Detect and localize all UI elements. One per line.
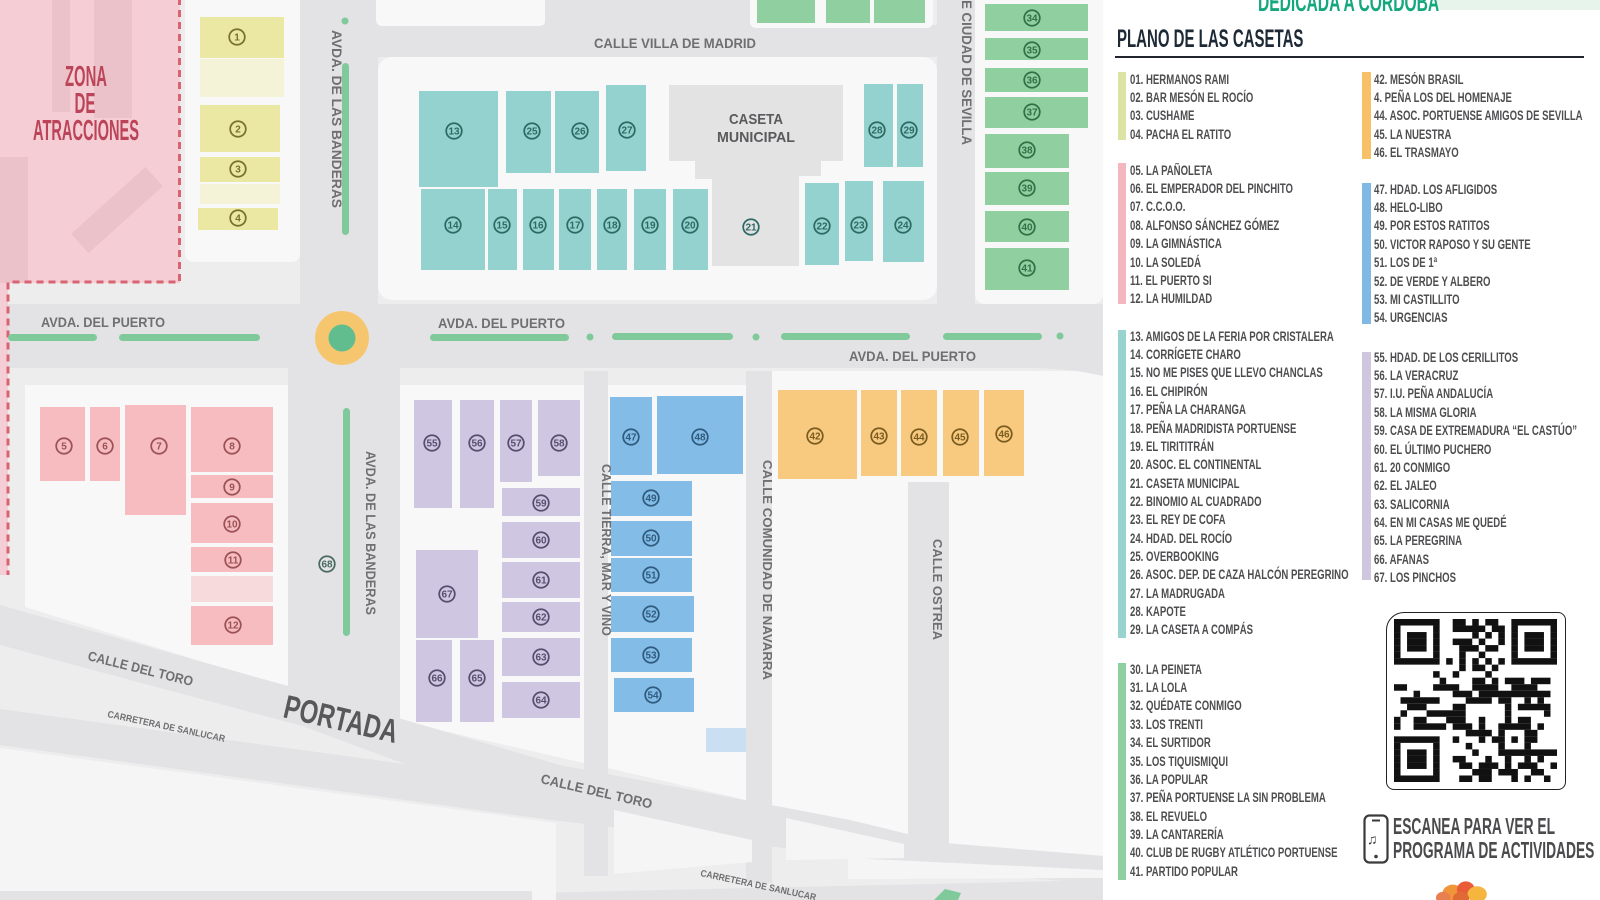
svg-text:49: 49: [645, 494, 657, 505]
svg-text:46: 46: [998, 430, 1010, 441]
svg-text:25: 25: [526, 127, 538, 138]
svg-text:10: 10: [226, 520, 238, 531]
svg-text:AVDA. DEL PUERTO: AVDA. DEL PUERTO: [438, 315, 565, 331]
svg-text:26: 26: [574, 127, 586, 138]
svg-text:29: 29: [903, 126, 915, 137]
svg-text:36: 36: [1026, 76, 1038, 87]
svg-text:9: 9: [229, 483, 235, 494]
svg-text:52: 52: [645, 610, 657, 621]
svg-text:62: 62: [535, 613, 547, 624]
svg-text:22: 22: [816, 222, 828, 233]
svg-text:59: 59: [535, 499, 547, 510]
svg-text:1: 1: [234, 33, 240, 44]
svg-text:CALLE CIUDAD DE SEVILLA: CALLE CIUDAD DE SEVILLA: [959, 0, 974, 145]
svg-text:6: 6: [102, 442, 108, 453]
svg-text:MUNICIPAL: MUNICIPAL: [717, 129, 795, 146]
svg-text:13: 13: [448, 127, 460, 138]
svg-text:48: 48: [694, 433, 706, 444]
svg-text:61: 61: [535, 576, 547, 587]
svg-text:50: 50: [645, 534, 657, 545]
svg-text:16: 16: [532, 221, 544, 232]
svg-text:55: 55: [426, 439, 438, 450]
svg-text:CASETA: CASETA: [729, 111, 783, 128]
svg-text:12: 12: [227, 621, 239, 632]
svg-text:AVDA. DE LAS BANDERAS: AVDA. DE LAS BANDERAS: [329, 30, 344, 208]
svg-text:14: 14: [447, 221, 459, 232]
svg-text:5: 5: [61, 442, 67, 453]
svg-text:♫: ♫: [1367, 831, 1378, 847]
svg-text:ATRACCIONES: ATRACCIONES: [33, 115, 139, 147]
svg-text:7: 7: [156, 442, 162, 453]
svg-text:4: 4: [235, 214, 241, 225]
svg-text:67: 67: [441, 590, 453, 601]
svg-text:47: 47: [625, 433, 637, 444]
svg-text:37: 37: [1026, 108, 1038, 119]
svg-text:CALLE VILLA DE MADRID: CALLE VILLA DE MADRID: [594, 36, 756, 51]
svg-text:40: 40: [1021, 223, 1033, 234]
svg-text:AVDA. DEL PUERTO: AVDA. DEL PUERTO: [849, 348, 976, 364]
svg-text:63: 63: [535, 653, 547, 664]
svg-text:8: 8: [229, 442, 235, 453]
svg-text:28: 28: [871, 126, 883, 137]
svg-text:11: 11: [228, 556, 239, 567]
svg-text:18: 18: [606, 221, 618, 232]
svg-text:19: 19: [644, 221, 656, 232]
svg-text:39: 39: [1021, 184, 1033, 195]
svg-text:42: 42: [809, 432, 821, 443]
svg-text:38: 38: [1021, 146, 1033, 157]
svg-text:20: 20: [684, 221, 696, 232]
svg-text:58: 58: [553, 439, 565, 450]
svg-text:65: 65: [471, 674, 483, 685]
svg-text:2: 2: [235, 125, 241, 136]
svg-text:CALLE COMUNIDAD DE NAVARRA: CALLE COMUNIDAD DE NAVARRA: [760, 460, 775, 681]
svg-text:44: 44: [913, 433, 925, 444]
svg-text:21: 21: [745, 223, 757, 234]
svg-text:54: 54: [647, 691, 659, 702]
svg-text:27: 27: [621, 126, 633, 137]
svg-text:53: 53: [645, 651, 657, 662]
svg-text:34: 34: [1026, 14, 1038, 25]
svg-text:57: 57: [510, 439, 522, 450]
svg-text:45: 45: [954, 433, 966, 444]
svg-text:17: 17: [569, 221, 581, 232]
svg-text:51: 51: [645, 571, 657, 582]
svg-text:24: 24: [897, 221, 909, 232]
svg-text:15: 15: [496, 221, 508, 232]
svg-text:43: 43: [873, 432, 885, 443]
svg-text:AVDA. DE LAS BANDERAS: AVDA. DE LAS BANDERAS: [363, 451, 378, 615]
svg-text:CALLE OSTREA: CALLE OSTREA: [930, 539, 945, 641]
svg-text:23: 23: [853, 221, 865, 232]
svg-text:41: 41: [1021, 264, 1033, 275]
svg-text:AVDA. DEL PUERTO: AVDA. DEL PUERTO: [41, 314, 165, 330]
svg-text:64: 64: [535, 696, 547, 707]
svg-text:35: 35: [1026, 46, 1038, 57]
svg-text:56: 56: [471, 439, 483, 450]
svg-text:68: 68: [321, 560, 333, 571]
svg-text:3: 3: [235, 165, 241, 176]
svg-text:60: 60: [535, 536, 547, 547]
svg-text:66: 66: [431, 674, 443, 685]
svg-text:CALLE TIERRA, MAR Y VINO: CALLE TIERRA, MAR Y VINO: [599, 464, 614, 636]
